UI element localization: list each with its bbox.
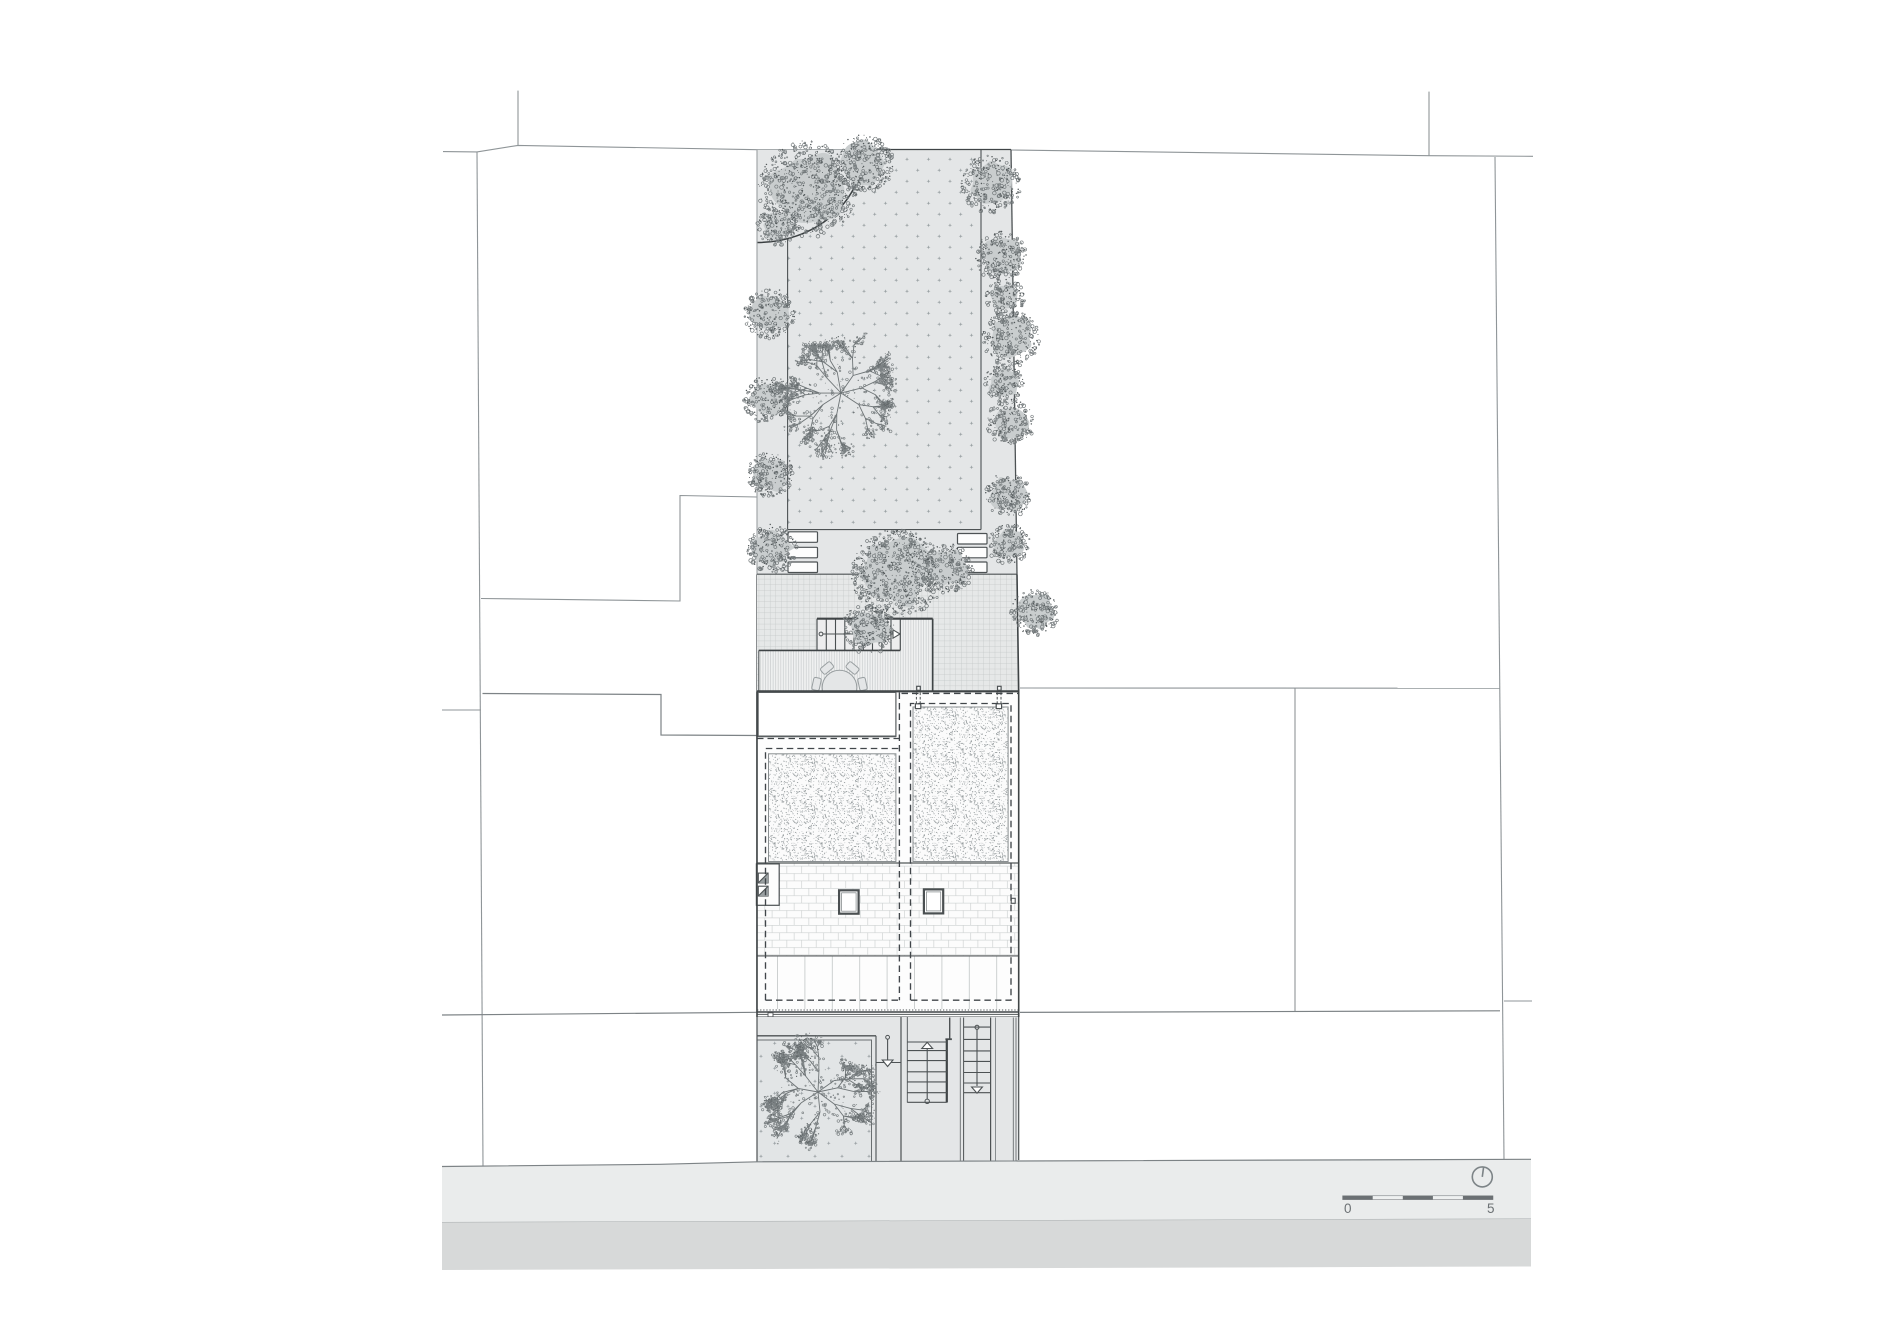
svg-text:5: 5 bbox=[1487, 1201, 1495, 1216]
svg-text:0: 0 bbox=[1344, 1201, 1352, 1216]
